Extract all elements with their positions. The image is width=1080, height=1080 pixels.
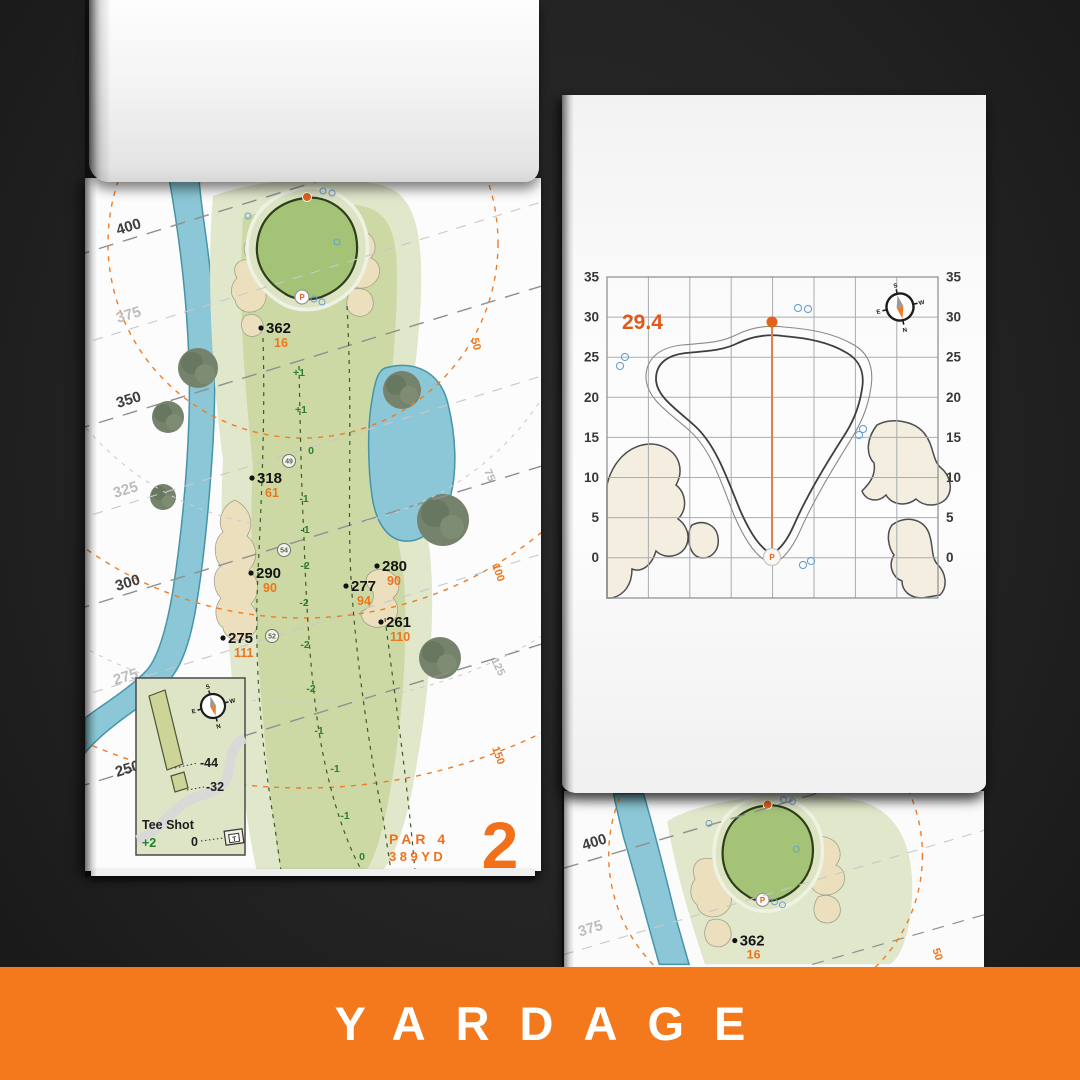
centerline-value: -1	[340, 810, 349, 822]
distance-label: 375	[576, 918, 604, 941]
banner-label: YARDAGE	[15, 967, 1080, 1080]
marker-carry: 275	[228, 630, 253, 647]
next-hole-page[interactable]: P 362 16 400 375	[564, 791, 984, 967]
compass-letter-s: S	[893, 283, 898, 290]
offset-short-label: -32	[206, 780, 224, 794]
tick-label: 25	[584, 350, 600, 365]
next-page-svg: P 362 16 400 375	[564, 791, 984, 967]
par-label: PAR 4	[389, 831, 449, 847]
tee-shot-inset: -44 -32 Tee Shot +2 0 T	[136, 678, 245, 855]
marker-rem: 110	[390, 630, 410, 644]
zero-label: 0	[191, 835, 198, 849]
marker-rem: 61	[265, 486, 279, 500]
marker-carry: 261	[386, 614, 411, 631]
page-curl-shadow	[89, 0, 111, 182]
compass-letter-w: W	[918, 300, 925, 307]
putting-green	[723, 805, 813, 901]
hole-footer: PAR 4 389YD 2	[389, 808, 518, 871]
tick-label: 0	[946, 550, 954, 565]
chart-compass: S N E W	[872, 278, 931, 339]
centerline-value: -1	[299, 493, 308, 505]
marker-carry: 280	[382, 558, 407, 575]
circled-value: 52	[268, 634, 276, 641]
marker-carry: 277	[351, 578, 376, 595]
tick-labels-right: 35 30 25 20 15 10 5 0	[946, 270, 962, 566]
compass-letter-n: N	[902, 328, 907, 335]
tree	[419, 637, 461, 679]
tick-label: 25	[946, 350, 962, 365]
marker-rem: 111	[234, 646, 254, 660]
radius-label: 50	[468, 337, 483, 352]
radius-labels: 50 75 100 125 150	[468, 337, 507, 767]
marker-carry: 290	[256, 565, 281, 582]
tick-label: 35	[946, 270, 962, 285]
tee-shot-title: Tee Shot	[142, 818, 195, 832]
compass-letter-e: E	[876, 309, 881, 316]
photo-stage: P	[0, 0, 1080, 1080]
tree	[383, 371, 421, 409]
marker-rem: 90	[387, 574, 401, 588]
tick-label: 0	[591, 550, 599, 565]
yardage-book-left: P	[85, 0, 541, 877]
marker-carry: 362	[266, 320, 291, 337]
hole-map-page: P	[85, 178, 541, 871]
marker-rem: 90	[263, 581, 277, 595]
tick-label: 10	[584, 470, 599, 485]
distance-label: 400	[580, 831, 608, 854]
green-depth-label: 29.4	[622, 311, 663, 334]
tee-marker: T	[224, 829, 244, 845]
page-stack-edge	[91, 869, 535, 876]
offset-long-label: -44	[200, 756, 218, 770]
centerline-value: -2	[300, 639, 309, 651]
elevation-label: +2	[142, 836, 156, 850]
centerline-value: 0	[308, 445, 314, 457]
marker-rem: 94	[357, 594, 371, 608]
pin-letter: P	[299, 293, 305, 302]
centerline-value: -1	[300, 524, 309, 536]
tick-label: 15	[584, 430, 600, 445]
tick-label: 5	[946, 510, 954, 525]
flipped-over-page[interactable]	[89, 0, 539, 182]
radius-label: 125	[488, 656, 507, 678]
tick-label: 20	[584, 390, 599, 405]
tree	[150, 484, 176, 510]
yardage-banner: YARDAGE	[0, 967, 1080, 1080]
tick-label: 10	[946, 470, 961, 485]
centerline-value: +1	[293, 367, 305, 379]
centerline-value: -2	[299, 597, 308, 609]
pin-letter: P	[760, 896, 766, 905]
radius-label: 100	[489, 562, 507, 583]
centerline-value: -2	[300, 560, 309, 572]
radius-label: 150	[489, 745, 507, 766]
depth-measure-dot	[767, 317, 778, 328]
circled-value: 49	[285, 459, 293, 466]
circled-value: 54	[280, 548, 288, 555]
distance-label: 400	[114, 215, 143, 239]
distance-label: 350	[114, 388, 143, 412]
yards-label: 389YD	[389, 849, 446, 864]
centerline-value: 0	[359, 851, 365, 863]
tick-labels-left: 35 30 25 20 15 10 5 0	[584, 270, 600, 566]
yardage-book-right: P 362 16 400 375	[562, 95, 986, 967]
putting-green	[257, 198, 357, 300]
centerline-value: -2	[306, 683, 315, 695]
marker-rem: 16	[747, 947, 761, 961]
tick-label: 30	[946, 310, 961, 325]
tree	[178, 348, 218, 388]
radius-label: 50	[930, 947, 945, 962]
centerline-value: -1	[314, 725, 323, 737]
tree	[417, 494, 469, 546]
tick-label: 20	[946, 390, 961, 405]
distance-label: 375	[114, 303, 143, 327]
river	[85, 178, 215, 753]
tick-label: 5	[591, 510, 599, 525]
tree	[152, 401, 184, 433]
pin-letter: P	[769, 553, 775, 562]
tick-label: 30	[584, 310, 599, 325]
green-detail-page[interactable]: P 35 30 25 20 15 10 5 0	[562, 95, 986, 793]
tick-label: 15	[946, 430, 962, 445]
hole-number: 2	[482, 808, 519, 871]
green-complex: P	[247, 188, 367, 310]
hole-map-svg: P	[85, 178, 541, 871]
green-detail-svg: P 35 30 25 20 15 10 5 0	[562, 95, 986, 793]
distance-label: 300	[113, 571, 142, 595]
centerline-value: +1	[295, 404, 307, 416]
marker-rem: 16	[274, 336, 288, 350]
centerline-value: -1	[330, 763, 339, 775]
tick-label: 35	[584, 270, 600, 285]
marker-carry: 318	[257, 470, 282, 487]
distance-label: 325	[111, 478, 140, 502]
pin-dot	[303, 193, 312, 202]
green-outline-inner	[656, 335, 863, 554]
chart-bunkers	[607, 421, 950, 598]
